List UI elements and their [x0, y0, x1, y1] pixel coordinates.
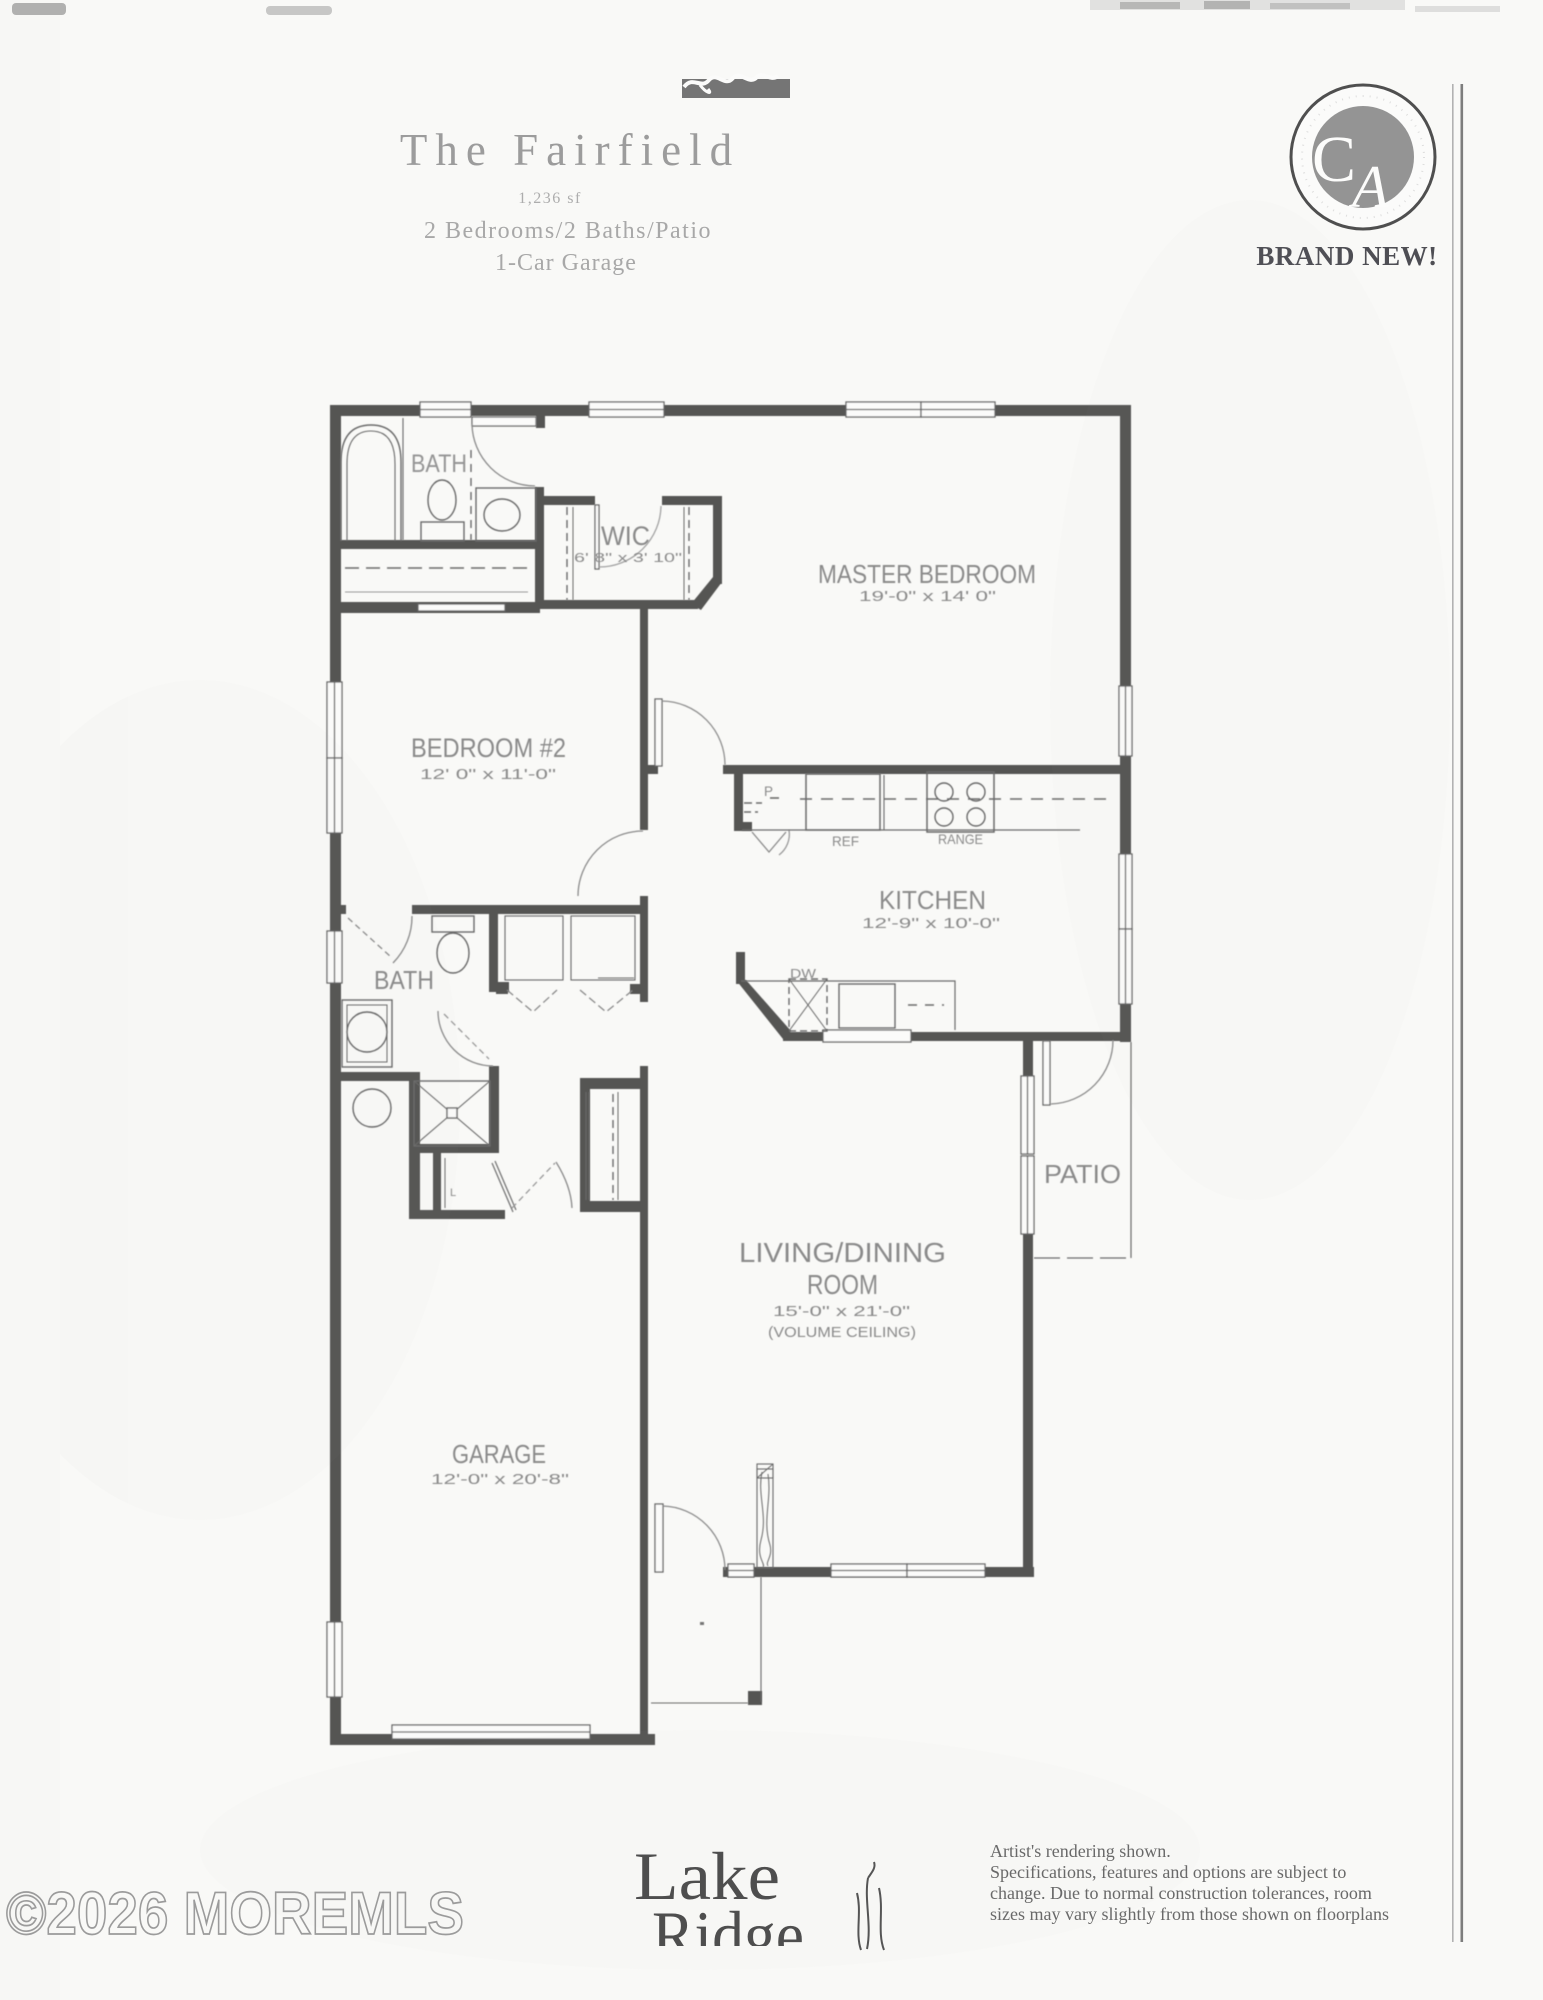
- svg-text:2 Bedrooms/2 Baths/Patio: 2 Bedrooms/2 Baths/Patio: [424, 218, 712, 244]
- svg-text:C: C: [1312, 123, 1356, 196]
- svg-text:MASTER BEDROOM: MASTER BEDROOM: [818, 559, 1036, 589]
- svg-text:REF: REF: [832, 833, 859, 849]
- svg-text:ROOM: ROOM: [807, 1269, 878, 1300]
- svg-text:6' 8" x 3' 10": 6' 8" x 3' 10": [574, 550, 683, 565]
- svg-text:©2026 MOREMLS: ©2026 MOREMLS: [6, 1880, 464, 1947]
- svg-text:12' 0" x 11'-0": 12' 0" x 11'-0": [420, 767, 556, 783]
- svg-text:1-Car Garage: 1-Car Garage: [495, 250, 637, 276]
- svg-text:BEDROOM #2: BEDROOM #2: [411, 733, 566, 763]
- svg-text:GARAGE: GARAGE: [452, 1439, 546, 1469]
- svg-text:(VOLUME CEILING): (VOLUME CEILING): [768, 1324, 916, 1341]
- svg-text:Artist's rendering shown.: Artist's rendering shown.: [990, 1841, 1171, 1861]
- svg-text:A: A: [1348, 154, 1389, 220]
- svg-text:12'-9" x 10'-0": 12'-9" x 10'-0": [862, 916, 1000, 932]
- svg-text:change. Due to normal construc: change. Due to normal construction toler…: [990, 1883, 1372, 1903]
- svg-text:WIC: WIC: [601, 521, 650, 551]
- svg-text:P: P: [764, 784, 773, 799]
- svg-text:The Fairfield: The Fairfield: [400, 125, 740, 175]
- svg-text:DW: DW: [790, 966, 817, 981]
- svg-text:1,236 sf: 1,236 sf: [518, 190, 582, 207]
- svg-text:PATIO: PATIO: [1044, 1159, 1121, 1189]
- svg-text:12'-0" x 20'-8": 12'-0" x 20'-8": [431, 1472, 569, 1488]
- svg-text:sizes may vary slightly from t: sizes may vary slightly from those shown…: [990, 1904, 1389, 1924]
- svg-text:Specifications, features and o: Specifications, features and options are…: [990, 1862, 1346, 1882]
- svg-text:19'-0" x 14' 0": 19'-0" x 14' 0": [859, 589, 996, 605]
- svg-text:RANGE: RANGE: [938, 831, 983, 847]
- svg-text:BATH: BATH: [411, 450, 467, 478]
- svg-text:LIVING/DINING: LIVING/DINING: [739, 1237, 946, 1268]
- svg-text:15'-0" x 21'-0": 15'-0" x 21'-0": [773, 1304, 910, 1320]
- svg-text:KITCHEN: KITCHEN: [879, 885, 986, 915]
